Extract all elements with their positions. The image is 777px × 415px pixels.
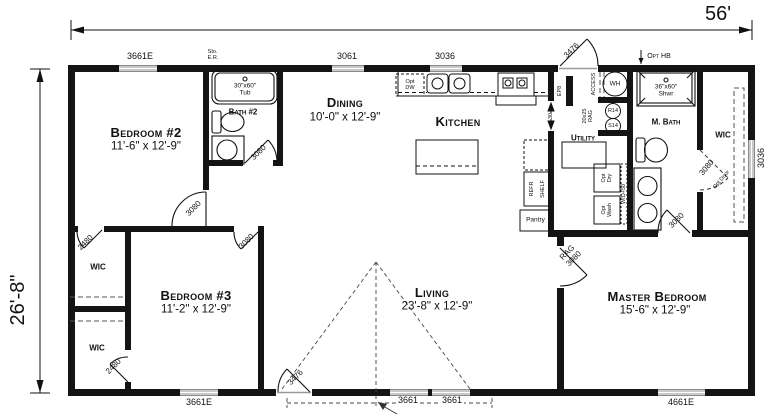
room-wic-master-name: WIC — [715, 132, 731, 141]
closet-shelving — [70, 72, 744, 321]
living-dashed-lines — [282, 262, 492, 408]
room-bedroom3-name: Bedroom #3 — [161, 289, 232, 303]
dimension-arrows — [37, 27, 753, 394]
room-utility-name: Utility — [571, 135, 595, 144]
opt-dry-label: Opt Dry — [601, 174, 613, 183]
room-mbath-name: M. Bath — [652, 119, 681, 128]
refr-label: REFR — [529, 182, 535, 197]
r14-label: R14 — [608, 108, 618, 114]
room-wic-bed2-name: WIC — [90, 264, 106, 273]
s14-label: S14 — [608, 123, 618, 129]
shelf-label: SHELF — [540, 180, 546, 198]
floor-plan: 56' 26'-8" Bedroom #2 11'-6" x 12'-9" Di… — [0, 0, 777, 415]
utility-opening-label: 30 — [547, 113, 555, 119]
door-label-wic-master-size: 3080 — [697, 158, 715, 177]
window-label-wic-right: 3036 — [757, 146, 767, 170]
window-label-dining-top: 3061 — [335, 52, 359, 62]
room-bedroom2-dims: 11'-6" x 12'-9" — [111, 141, 181, 154]
shower-size: 36"x60" — [655, 84, 677, 91]
opt-dw-label: Opt DW — [405, 79, 414, 91]
room-bedroom3-dims: 11'-2" x 12'-9" — [161, 304, 231, 317]
room-master-dims: 15'-6" x 12'-9" — [620, 305, 691, 318]
opt-dry-2: Dry — [607, 174, 613, 183]
wd50-label: W/D+50 — [621, 184, 627, 204]
room-master-name: Master Bedroom — [607, 290, 706, 304]
room-bath2-name: Bath #2 — [229, 109, 258, 118]
door-swings — [77, 39, 690, 392]
sto-2: E.R. — [208, 55, 219, 61]
water-heater-label: WH — [610, 80, 621, 87]
shower-word: Shwr — [659, 91, 674, 98]
tub-word: Tub — [240, 90, 251, 97]
window-label-living-a: 3661 — [396, 396, 420, 406]
access-label: ACCESS — [591, 73, 597, 96]
ep-label: EP8 — [557, 86, 563, 96]
room-living-dims: 23'-8" x 12'-9" — [402, 301, 473, 314]
window-label-kitchen-top: 3036 — [433, 52, 457, 62]
window-label-living-b: 3661 — [440, 396, 464, 406]
shower-label: 36"x60" Shwr — [655, 84, 677, 99]
room-kitchen-name: Kitchen — [436, 115, 481, 129]
room-wic-bed3-name: WIC — [89, 345, 105, 354]
overall-width-dim: 56' — [705, 3, 731, 25]
room-dining-dims: 10'-0" x 12'-9" — [310, 112, 381, 125]
overall-depth-dim: 26'-8" — [7, 275, 29, 326]
window-label-bed2-top: 3661E — [125, 52, 155, 62]
opt-dw-2: DW — [405, 85, 414, 91]
room-living-name: Living — [415, 286, 449, 300]
kitchen-fixtures — [396, 72, 551, 231]
opt-wash-2: Wash — [607, 203, 613, 217]
rag-label: 20x25 RAG — [582, 109, 594, 124]
plan-linework — [0, 0, 777, 415]
option-leader — [378, 402, 397, 414]
rag-word: RAG — [588, 110, 594, 122]
opt-hb-marker — [639, 50, 644, 64]
opt-wash-label: Opt Wash — [601, 203, 613, 217]
opt-hb-label: Opt HB — [647, 53, 671, 61]
sto-er-label: Sto. E.R. — [208, 49, 219, 61]
window-label-master-bottom: 4661E — [666, 398, 696, 408]
tub-size: 30"x60" — [234, 83, 256, 90]
room-bedroom2-name: Bedroom #2 — [111, 126, 182, 140]
pantry-label: Pantry — [526, 216, 545, 223]
tub-label: 30"x60" Tub — [234, 83, 256, 98]
room-dining-name: Dining — [327, 96, 363, 110]
window-label-bed3-bottom: 3661E — [184, 398, 214, 408]
